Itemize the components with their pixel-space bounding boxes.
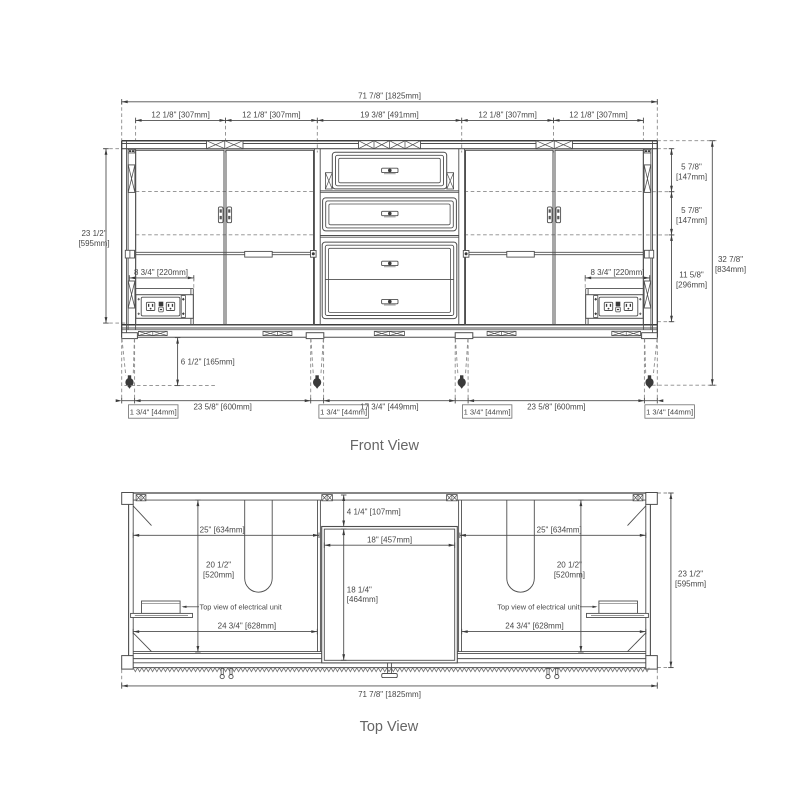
- svg-text:32 7/8": 32 7/8": [718, 255, 743, 264]
- svg-text:17 3/4" [449mm]: 17 3/4" [449mm]: [360, 403, 418, 412]
- svg-text:25" [634mm]: 25" [634mm]: [537, 525, 582, 534]
- svg-text:Top View: Top View: [360, 719, 419, 735]
- svg-text:12 1/8" [307mm]: 12 1/8" [307mm]: [151, 110, 209, 119]
- svg-text:12 1/8" [307mm]: 12 1/8" [307mm]: [242, 110, 300, 119]
- svg-text:24 3/4" [628mm]: 24 3/4" [628mm]: [218, 621, 276, 630]
- svg-text:[296mm]: [296mm]: [676, 281, 707, 290]
- svg-text:[595mm]: [595mm]: [78, 239, 109, 248]
- svg-text:20 1/2": 20 1/2": [557, 560, 582, 569]
- svg-text:19 3/8" [491mm]: 19 3/8" [491mm]: [360, 110, 418, 119]
- svg-text:5 7/8": 5 7/8": [681, 206, 702, 215]
- svg-text:[520mm]: [520mm]: [203, 570, 234, 579]
- svg-text:[147mm]: [147mm]: [676, 172, 707, 181]
- svg-text:5 7/8": 5 7/8": [681, 162, 702, 171]
- svg-text:Front View: Front View: [350, 438, 420, 454]
- svg-text:4 1/4" [107mm]: 4 1/4" [107mm]: [347, 507, 401, 516]
- svg-text:8 3/4" [220mm]: 8 3/4" [220mm]: [591, 268, 645, 277]
- svg-text:1 3/4" [44mm]: 1 3/4" [44mm]: [464, 408, 511, 417]
- svg-text:[834mm]: [834mm]: [715, 265, 746, 274]
- svg-text:25" [634mm]: 25" [634mm]: [200, 525, 245, 534]
- svg-text:1 3/4" [44mm]: 1 3/4" [44mm]: [646, 408, 693, 417]
- svg-text:Top view of electrical unit: Top view of electrical unit: [497, 603, 579, 612]
- svg-text:11 5/8": 11 5/8": [679, 271, 704, 280]
- svg-text:24 3/4" [628mm]: 24 3/4" [628mm]: [505, 621, 563, 630]
- svg-text:[147mm]: [147mm]: [676, 216, 707, 225]
- svg-text:Top view of electrical unit: Top view of electrical unit: [200, 603, 282, 612]
- svg-text:1 3/4" [44mm]: 1 3/4" [44mm]: [130, 408, 177, 417]
- svg-text:8 3/4" [220mm]: 8 3/4" [220mm]: [134, 268, 188, 277]
- svg-text:23 5/8" [600mm]: 23 5/8" [600mm]: [527, 403, 585, 412]
- svg-text:12 1/8" [307mm]: 12 1/8" [307mm]: [478, 110, 536, 119]
- svg-text:23 1/2": 23 1/2": [678, 569, 703, 578]
- svg-text:18" [457mm]: 18" [457mm]: [367, 535, 412, 544]
- svg-text:71 7/8" [1825mm]: 71 7/8" [1825mm]: [358, 92, 421, 101]
- svg-text:[464mm]: [464mm]: [347, 595, 378, 604]
- svg-text:23 1/2": 23 1/2": [81, 229, 106, 238]
- svg-text:1 3/4" [44mm]: 1 3/4" [44mm]: [320, 408, 367, 417]
- svg-text:20 1/2": 20 1/2": [206, 560, 231, 569]
- svg-text:18 1/4": 18 1/4": [347, 586, 372, 595]
- svg-text:71 7/8" [1825mm]: 71 7/8" [1825mm]: [358, 690, 421, 699]
- svg-text:23 5/8" [600mm]: 23 5/8" [600mm]: [193, 403, 251, 412]
- svg-text:12 1/8" [307mm]: 12 1/8" [307mm]: [569, 110, 627, 119]
- svg-text:6 1/2" [165mm]: 6 1/2" [165mm]: [181, 357, 235, 366]
- svg-text:[520mm]: [520mm]: [554, 570, 585, 579]
- svg-text:[595mm]: [595mm]: [675, 579, 706, 588]
